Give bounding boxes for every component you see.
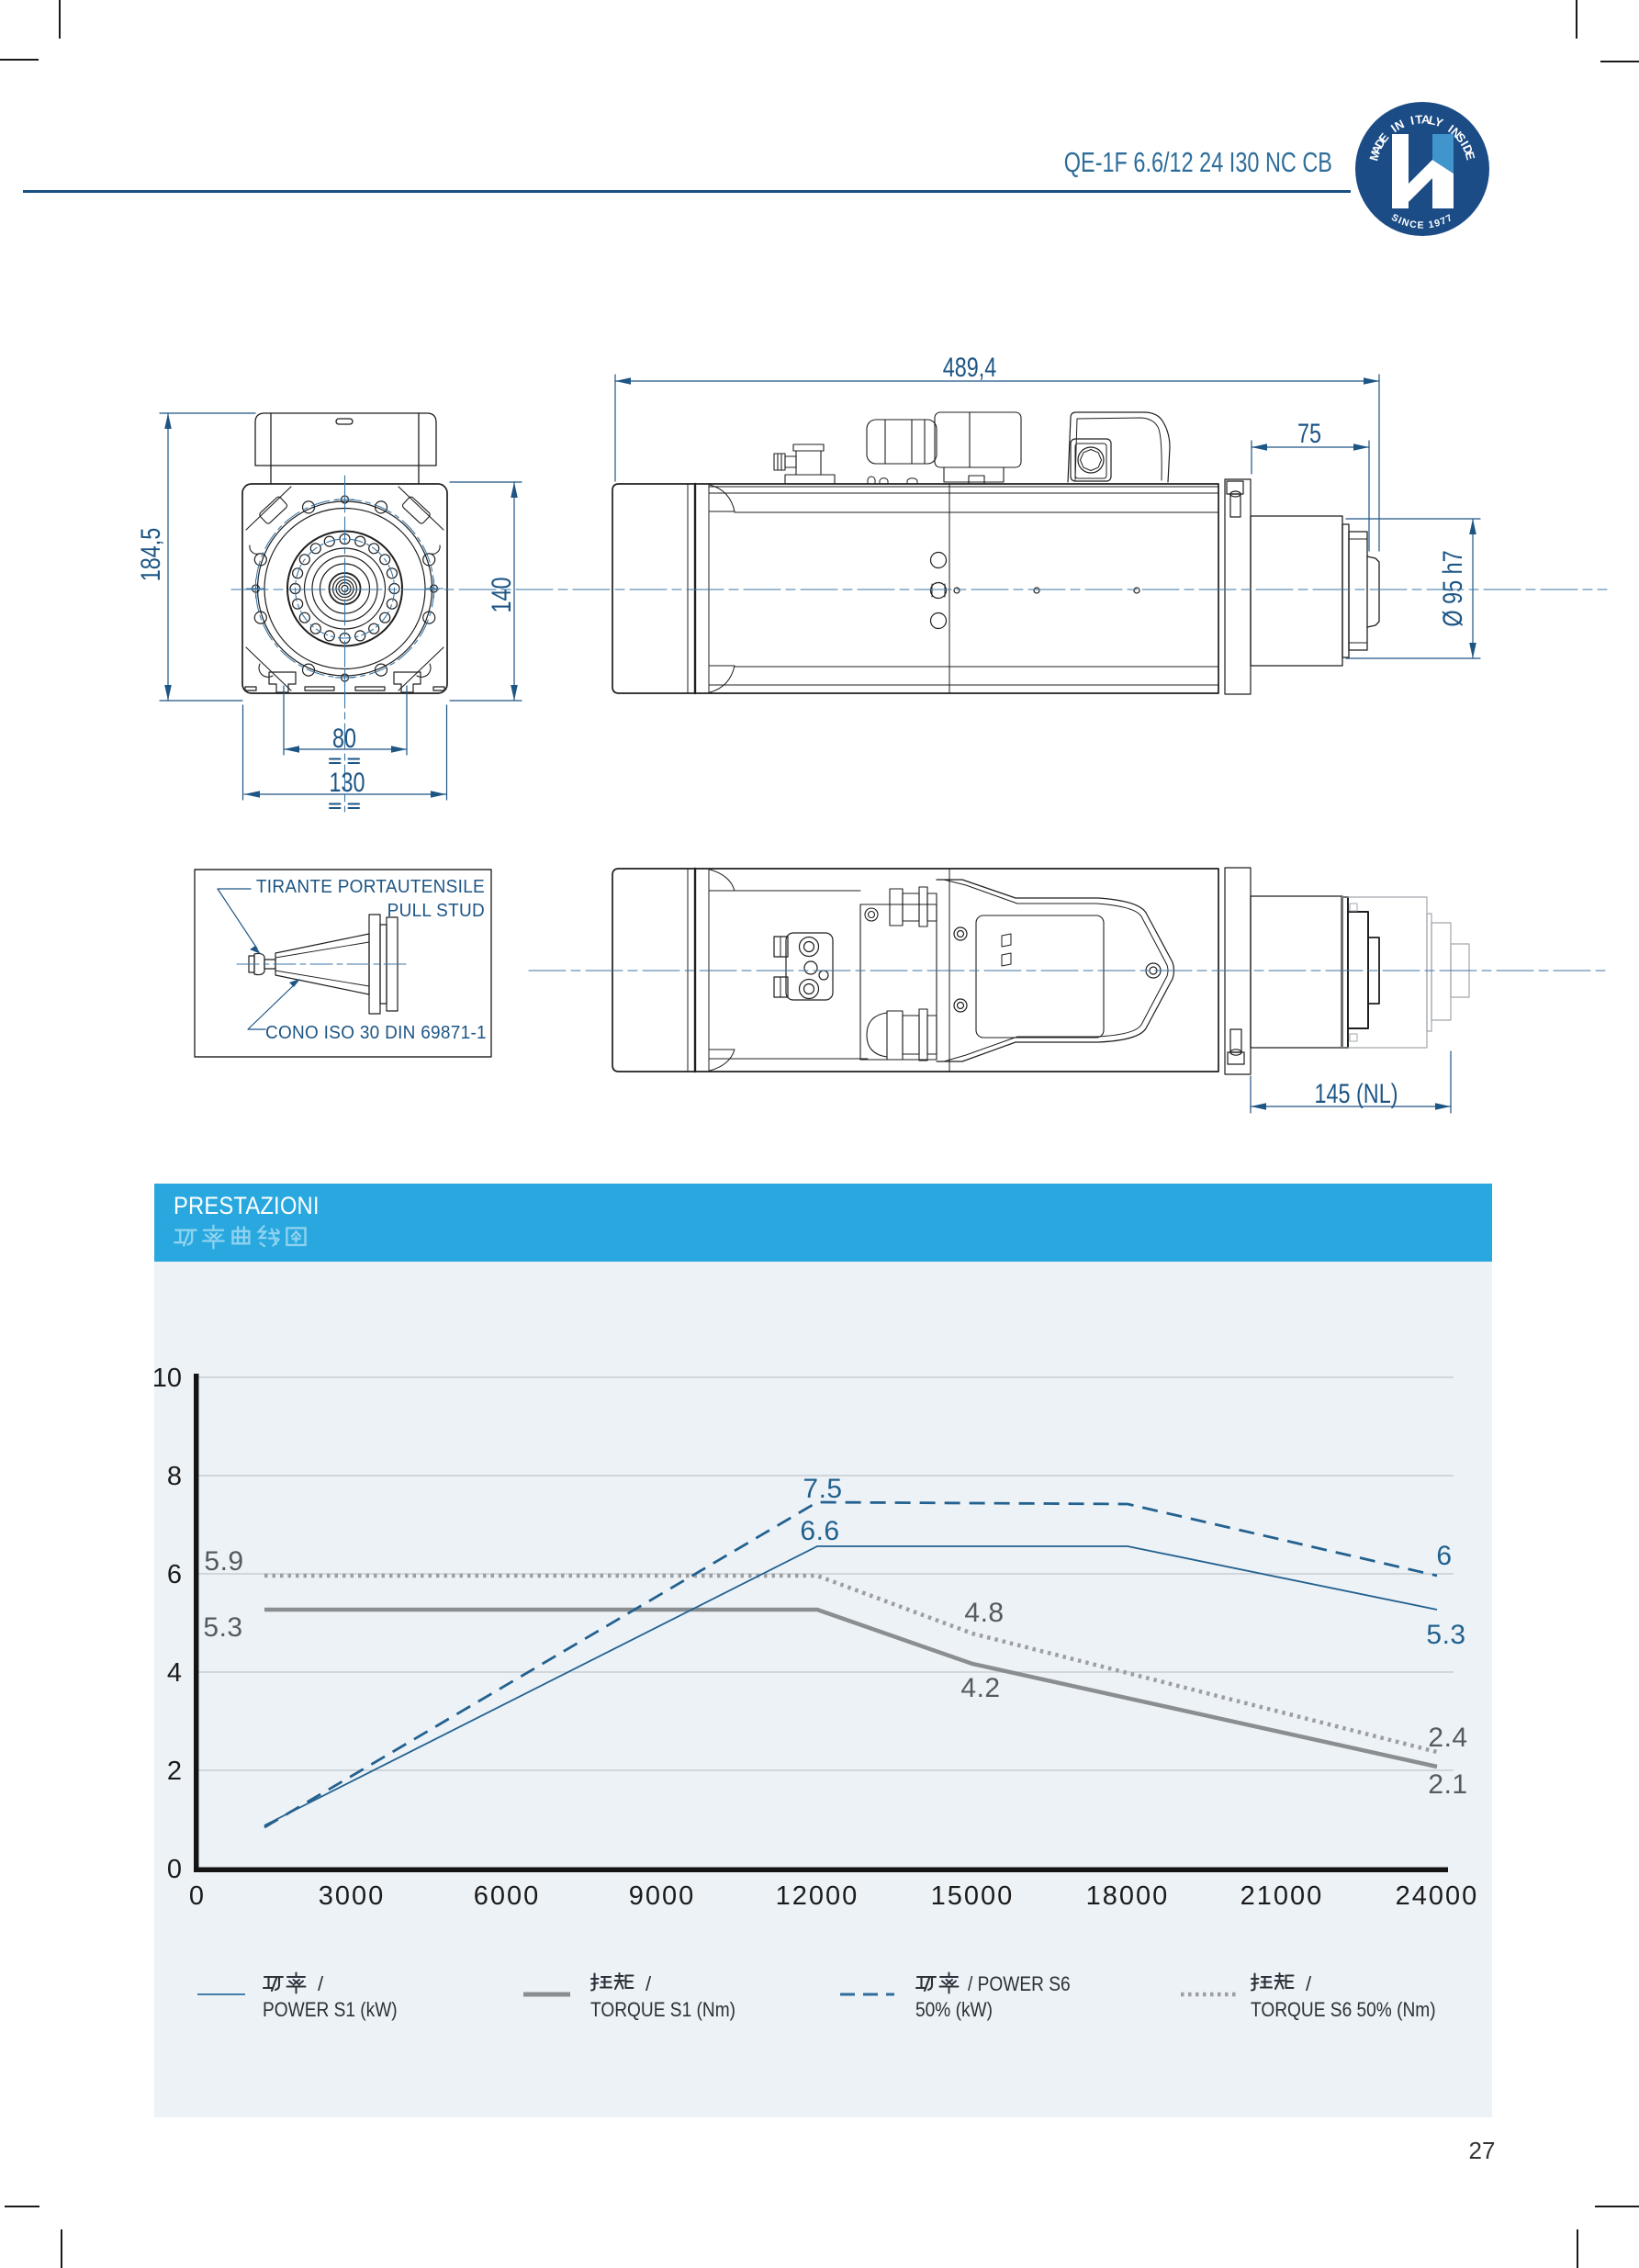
svg-text:140: 140: [486, 577, 516, 612]
svg-text:2: 2: [167, 1757, 182, 1786]
svg-text:145 (NL): 145 (NL): [1314, 1078, 1398, 1108]
svg-text:4.8: 4.8: [964, 1598, 1004, 1628]
svg-text:24000: 24000: [1396, 1881, 1479, 1911]
svg-text:0: 0: [167, 1855, 182, 1884]
svg-text:POWER S1 (kW): POWER S1 (kW): [263, 1999, 398, 2022]
svg-text:6.6: 6.6: [800, 1516, 839, 1546]
svg-text:12000: 12000: [776, 1881, 859, 1911]
svg-text:21000: 21000: [1240, 1881, 1324, 1911]
svg-text:3000: 3000: [319, 1881, 386, 1911]
svg-text:75: 75: [1297, 418, 1321, 448]
svg-text:TORQUE S6 50% (Nm): TORQUE S6 50% (Nm): [1251, 1999, 1436, 2022]
svg-text:4: 4: [167, 1658, 182, 1688]
svg-text:10: 10: [154, 1364, 182, 1393]
svg-text:184,5: 184,5: [135, 528, 165, 582]
svg-text:TORQUE S1 (Nm): TORQUE S1 (Nm): [590, 1999, 735, 2022]
svg-text:2.1: 2.1: [1428, 1769, 1467, 1800]
svg-text:PULL STUD: PULL STUD: [387, 901, 485, 922]
svg-text:50% (kW): 50% (kW): [915, 1999, 993, 2022]
svg-text:TIRANTE PORTAUTENSILE: TIRANTE PORTAUTENSILE: [256, 877, 485, 898]
svg-text:6: 6: [167, 1560, 182, 1589]
svg-text:5.3: 5.3: [203, 1612, 242, 1643]
svg-text:15000: 15000: [931, 1881, 1015, 1911]
svg-text:130: 130: [329, 767, 365, 797]
svg-text:Ø 95 h7: Ø 95 h7: [1437, 550, 1467, 626]
svg-text:4.2: 4.2: [960, 1673, 1000, 1703]
svg-text:/: /: [645, 1972, 652, 1995]
svg-text:6: 6: [1436, 1541, 1452, 1571]
svg-text:/: /: [318, 1972, 324, 1995]
svg-text:7.5: 7.5: [803, 1474, 842, 1504]
svg-text:18000: 18000: [1086, 1881, 1170, 1911]
svg-text:/ POWER S6: / POWER S6: [968, 1973, 1071, 1996]
svg-text:9000: 9000: [629, 1881, 696, 1911]
svg-text:80: 80: [332, 723, 356, 753]
svg-text:5.9: 5.9: [204, 1546, 243, 1577]
svg-text:6000: 6000: [474, 1881, 541, 1911]
svg-text:/: /: [1306, 1972, 1312, 1995]
svg-text:CONO ISO 30 DIN 69871-1: CONO ISO 30 DIN 69871-1: [265, 1023, 487, 1044]
svg-text:2.4: 2.4: [1428, 1723, 1467, 1753]
svg-text:0: 0: [189, 1881, 206, 1911]
svg-text:489,4: 489,4: [943, 352, 997, 382]
svg-text:5.3: 5.3: [1426, 1620, 1465, 1650]
svg-text:8: 8: [167, 1462, 182, 1491]
